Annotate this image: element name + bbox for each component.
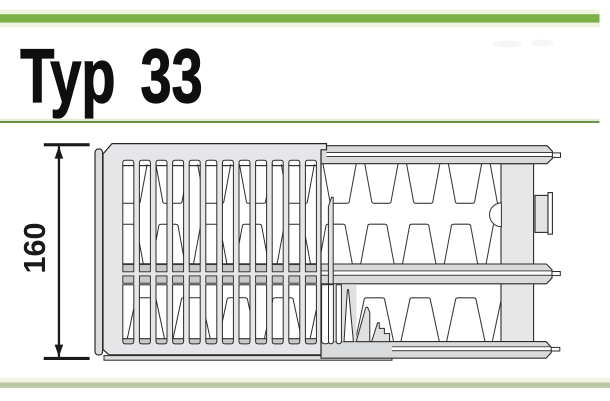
svg-text:160: 160 (18, 223, 52, 274)
svg-text:Typ 33: Typ 33 (20, 35, 202, 119)
